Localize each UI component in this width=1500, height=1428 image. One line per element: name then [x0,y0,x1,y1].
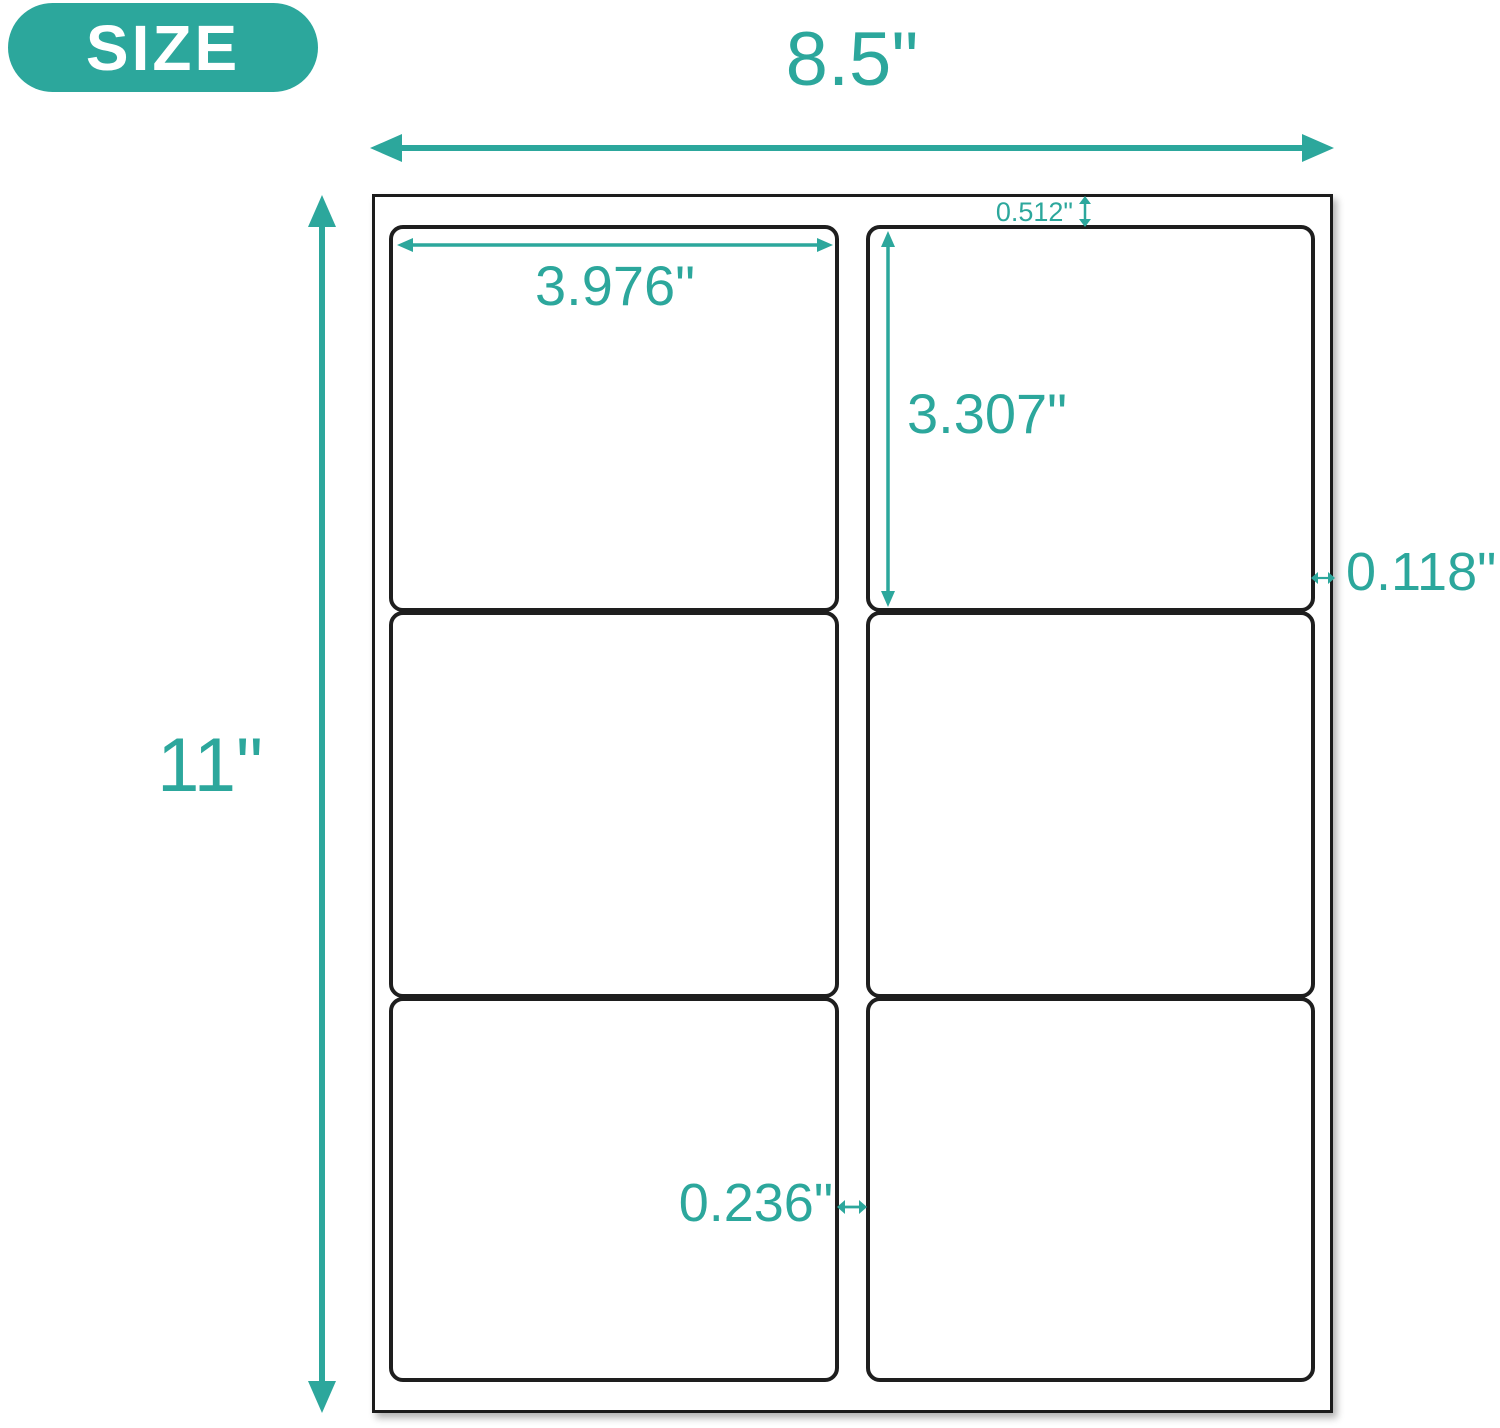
top-margin-arrow-icon [1077,196,1093,227]
cell-height-arrow-icon [880,230,896,608]
size-badge: SIZE [8,3,318,92]
label-cell [866,611,1315,998]
sheet-height-arrow-icon [306,193,338,1415]
label-size-diagram: SIZE 8.5" 11" 3.976" [0,0,1500,1428]
side-margin-arrow-icon [1311,570,1335,586]
cell-width-arrow-icon [396,237,834,253]
cell-width-value: 3.976" [465,258,765,314]
sheet-height-value: 11" [120,728,300,804]
column-gap-arrow-icon [836,1197,868,1217]
top-margin-value: 0.512" [933,199,1073,226]
label-cell [866,997,1315,1382]
sheet-width-arrow-icon [368,133,1336,163]
label-cell [389,611,839,998]
cell-height-value: 3.307" [907,386,1067,442]
column-gap-value: 0.236" [655,1176,833,1230]
sheet-width-value: 8.5" [702,22,1002,98]
side-margin-value: 0.118" [1346,545,1496,599]
